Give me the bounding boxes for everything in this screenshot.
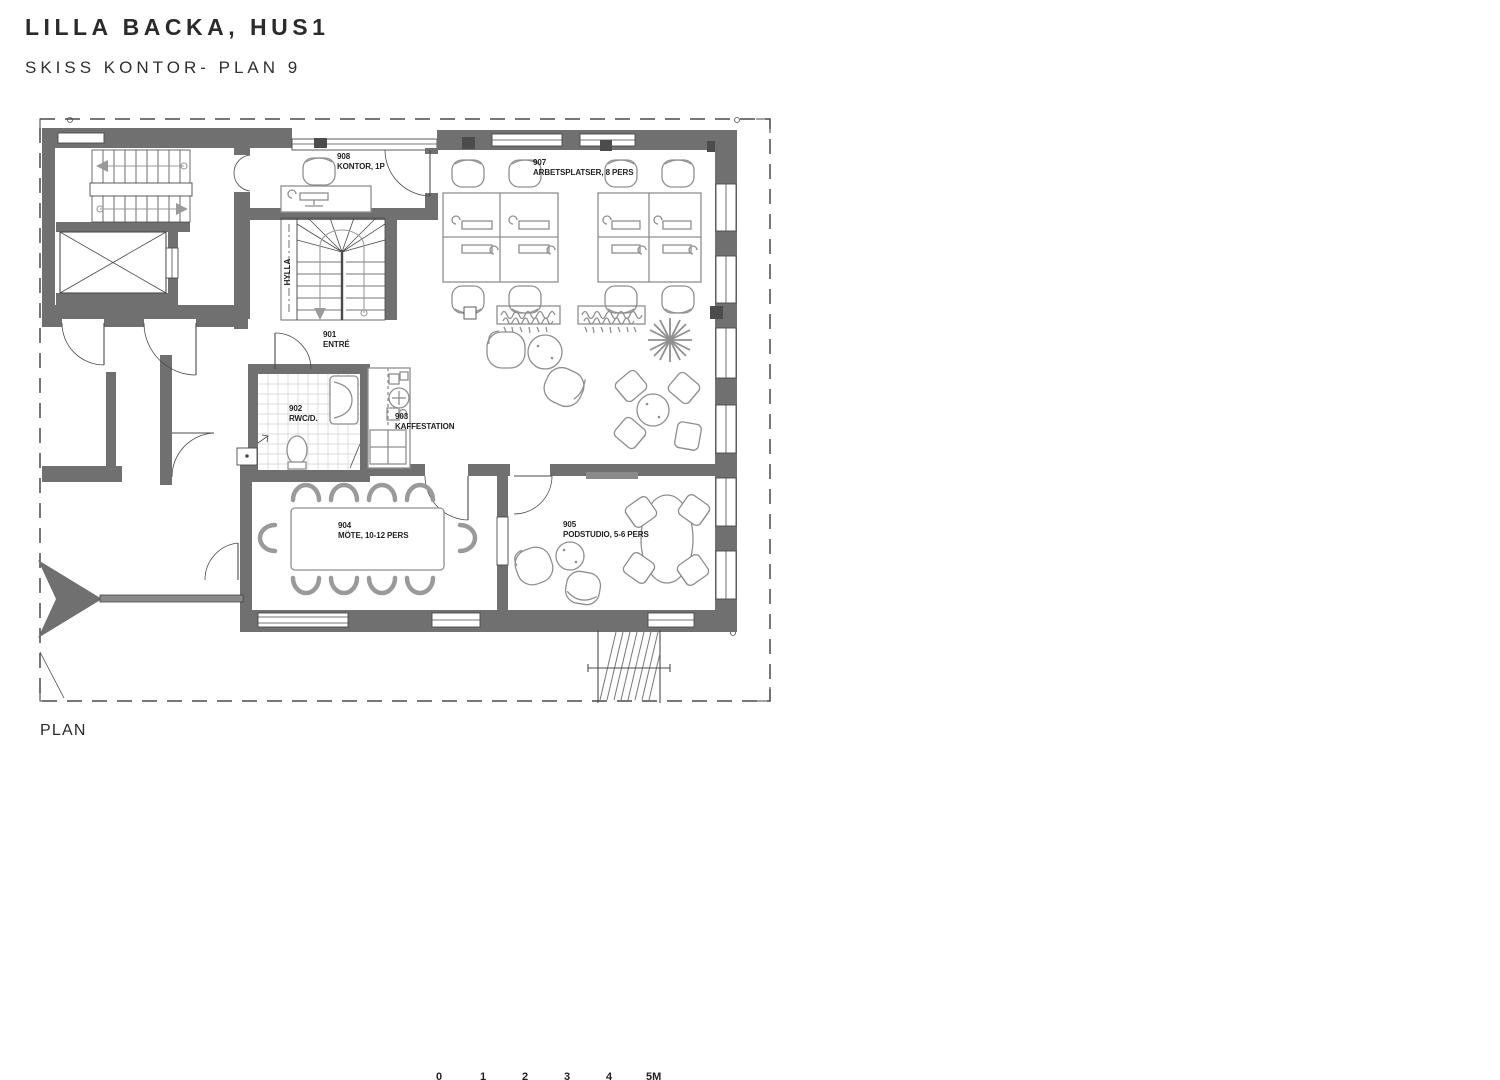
room-907-number: 907 (533, 158, 547, 167)
scale-tick-label: 2 (522, 1071, 528, 1080)
shelf-label: HYLLA (283, 258, 292, 285)
scale-bar: 0 1 2 3 4 5M (0, 1071, 1500, 1080)
room-908-number: 908 (337, 152, 351, 161)
room-902-rwc: 902 RWC/D. (258, 374, 360, 470)
room-904-name: MÖTE, 10-12 PERS (338, 531, 409, 540)
room-905-number: 905 (563, 520, 577, 529)
plan-caption: PLAN (40, 722, 87, 740)
room-904-mote: 904 MÖTE, 10-12 PERS (260, 476, 475, 593)
room-904-number: 904 (338, 521, 352, 530)
room-908-name: KONTOR, 1P (337, 162, 386, 171)
scale-tick-label: 3 (564, 1071, 570, 1080)
room-905-name: PODSTUDIO, 5-6 PERS (563, 530, 649, 539)
lounge-area (464, 306, 702, 451)
room-901-number: 901 (323, 330, 337, 339)
drawing-sheet: LILLA BACKA, HUS1 SKISS KONTOR- PLAN 9 (0, 0, 1500, 1080)
room-903-kaffestation: 903 KAFFESTATION (368, 368, 455, 468)
scale-tick-label: 5M (646, 1071, 661, 1080)
scale-tick-label: 0 (436, 1071, 442, 1080)
room-907-arbetsplatser: 907 ARBETSPLATSER, 8 PERS (443, 158, 701, 313)
scale-tick-label: 4 (606, 1071, 612, 1080)
room-908-kontor: 908 KONTOR, 1P (281, 150, 430, 212)
room-905-podstudio: 905 PODSTUDIO, 5-6 PERS (511, 472, 712, 607)
room-903-name: KAFFESTATION (395, 422, 455, 431)
scale-tick-label: 1 (480, 1071, 486, 1080)
plant-icon (648, 318, 692, 362)
stairwell-northwest (60, 150, 192, 293)
room-907-name: ARBETSPLATSER, 8 PERS (533, 168, 634, 177)
room-901-entre: 901 ENTRÉ (275, 330, 350, 369)
exterior-stair (588, 630, 670, 703)
room-902-name: RWC/D. (289, 414, 318, 423)
room-901-name: ENTRÉ (323, 340, 350, 349)
room-903-number: 903 (395, 412, 409, 421)
stair-central: HYLLA (281, 218, 385, 320)
room-902-number: 902 (289, 404, 303, 413)
floor-plan-svg: HYLLA 908 KONTOR, 1P (0, 0, 1500, 1080)
doors (62, 155, 257, 580)
